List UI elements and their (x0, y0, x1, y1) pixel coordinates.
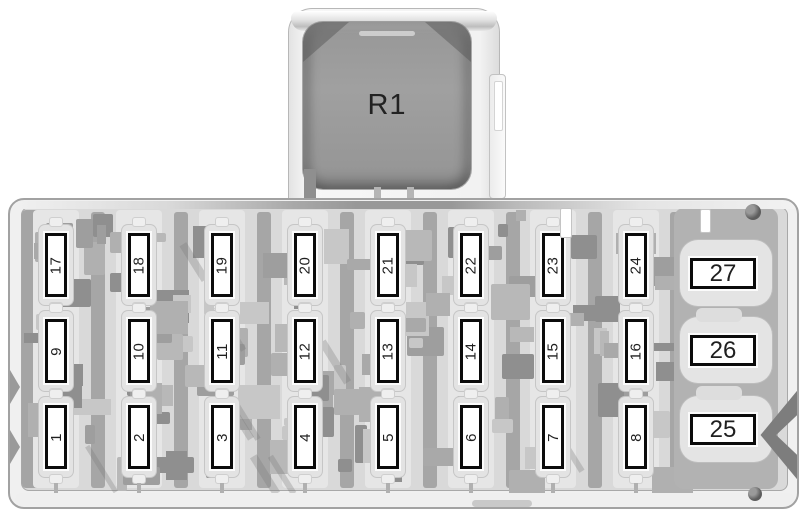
fuse-15: 15 (542, 319, 564, 383)
panel-molding (502, 354, 533, 379)
panel-molding (547, 390, 559, 398)
relay-side-tab (489, 74, 506, 199)
panel-molding (630, 304, 642, 312)
panel-slot (700, 209, 711, 233)
relay-highlight (359, 31, 415, 36)
panel-molding (510, 327, 534, 343)
panel-molding (216, 475, 228, 483)
panel-molding (76, 219, 93, 248)
panel-molding (630, 218, 642, 226)
panel-molding (547, 475, 559, 483)
fuse-25: 25 (690, 414, 756, 445)
panel-molding (696, 308, 742, 322)
relay-housing-shadow (304, 169, 316, 200)
fuse-11: 11 (211, 319, 233, 383)
panel-molding (696, 386, 742, 400)
fuse-label: 9 (48, 347, 65, 356)
fuse-16: 16 (625, 319, 647, 383)
fuse-label: 4 (297, 433, 314, 442)
panel-molding (240, 302, 269, 324)
left-edge-notch (10, 370, 20, 404)
fuse-26: 26 (690, 335, 756, 366)
panel-molding (547, 218, 559, 226)
panel-molding (409, 338, 423, 347)
panel-molding (547, 304, 559, 312)
fuse-7: 7 (542, 405, 564, 469)
fuse-label: 16 (628, 342, 645, 360)
panel-molding (133, 304, 145, 312)
mounting-hole-bottom (748, 487, 762, 501)
fuse-17: 17 (45, 233, 67, 297)
fuse-23: 23 (542, 233, 564, 297)
fuse-24: 24 (625, 233, 647, 297)
fuse-label: 3 (214, 433, 231, 442)
panel-molding (133, 218, 145, 226)
panel-bottom-tab (472, 500, 532, 507)
panel-molding (465, 218, 477, 226)
fuse-panel: 1718192021222324910111213141516123456782… (8, 198, 799, 509)
fuse-20: 20 (294, 233, 316, 297)
fuse-4: 4 (294, 405, 316, 469)
fuse-12: 12 (294, 319, 316, 383)
panel-molding (216, 304, 228, 312)
fuse-label: 2 (131, 433, 148, 442)
fuse-label: 19 (214, 256, 231, 274)
fuse-8: 8 (625, 405, 647, 469)
fuse-18: 18 (128, 233, 150, 297)
panel-slot (560, 208, 572, 238)
panel-molding (338, 459, 352, 471)
panel-top-edge (12, 201, 797, 209)
panel-molding (465, 475, 477, 483)
fuse-13: 13 (377, 319, 399, 383)
relay-label: R1 (367, 89, 406, 122)
relay-bevel-corner (425, 22, 471, 62)
panel-molding (491, 284, 530, 320)
panel-molding (525, 447, 536, 469)
fuse-3: 3 (211, 405, 233, 469)
panel-molding (382, 390, 394, 398)
fuse-label: 26 (710, 337, 737, 365)
panel-molding (166, 451, 187, 480)
panel-molding (85, 425, 95, 444)
panel-molding (216, 218, 228, 226)
fuse-label: 27 (710, 260, 737, 288)
fuse-2: 2 (128, 405, 150, 469)
fuse-label: 1 (48, 433, 65, 442)
fuse-19: 19 (211, 233, 233, 297)
panel-molding (299, 390, 311, 398)
panel-molding (382, 218, 394, 226)
panel-molding (216, 390, 228, 398)
fuse-label: 11 (214, 343, 231, 360)
fuse-label: 25 (710, 416, 737, 444)
fuse-label: 12 (297, 342, 314, 360)
fuse-label: 13 (380, 342, 397, 360)
fuse-label: 8 (628, 433, 645, 442)
panel-molding (465, 304, 477, 312)
fuse-label: 23 (545, 256, 562, 274)
panel-molding (299, 218, 311, 226)
panel-molding (50, 304, 62, 312)
relay-tab-slot (494, 81, 503, 131)
panel-molding (350, 312, 365, 329)
panel-molding (630, 475, 642, 483)
panel-molding (50, 218, 62, 226)
fuse-9: 9 (45, 319, 67, 383)
fuse-6: 6 (460, 405, 482, 469)
panel-molding (299, 304, 311, 312)
panel-molding (50, 390, 62, 398)
fuse-box-diagram: R1 1718192021222324910111213141516123456… (0, 0, 807, 509)
panel-molding (492, 419, 513, 433)
panel-molding (382, 475, 394, 483)
relay-bevel-corner (303, 22, 349, 62)
panel-molding (299, 475, 311, 483)
fuse-label: 24 (628, 256, 645, 274)
panel-molding (630, 390, 642, 398)
panel-molding (595, 296, 620, 322)
fuse-label: 14 (463, 342, 480, 360)
panel-molding (465, 390, 477, 398)
mounting-hole-top (745, 204, 761, 220)
left-edge-notch (10, 430, 20, 464)
fuse-label: 10 (131, 342, 148, 360)
fuse-22: 22 (460, 233, 482, 297)
fuse-label: 22 (463, 256, 480, 274)
panel-molding (571, 235, 597, 259)
panel-molding (50, 475, 62, 483)
panel-molding (426, 293, 450, 317)
fuse-label: 18 (131, 256, 148, 274)
panel-molding (498, 224, 508, 237)
fuse-1: 1 (45, 405, 67, 469)
panel-bottom-edge (15, 493, 794, 506)
relay-r1: R1 (303, 22, 471, 189)
fuse-27: 27 (690, 258, 756, 289)
fuse-label: 7 (545, 433, 562, 442)
fuse-label: 21 (380, 256, 397, 274)
panel-molding (516, 210, 526, 221)
fuse-5: 5 (377, 405, 399, 469)
fuse-21: 21 (377, 233, 399, 297)
panel-molding (382, 304, 394, 312)
fuse-10: 10 (128, 319, 150, 383)
fuse-14: 14 (460, 319, 482, 383)
panel-molding (322, 407, 334, 436)
panel-molding (506, 212, 520, 488)
fuse-label: 17 (48, 256, 65, 274)
relay-housing: R1 (288, 8, 500, 199)
panel-molding (334, 389, 361, 415)
panel-molding (97, 225, 106, 243)
panel-molding (133, 390, 145, 398)
panel-molding (652, 411, 670, 438)
fuse-label: 20 (297, 256, 314, 274)
fuse-label: 15 (545, 342, 562, 360)
fuse-label: 5 (380, 433, 397, 442)
panel-molding (403, 230, 433, 262)
panel-molding (133, 475, 145, 483)
panel-molding (324, 229, 349, 264)
fuse-label: 6 (463, 433, 480, 442)
